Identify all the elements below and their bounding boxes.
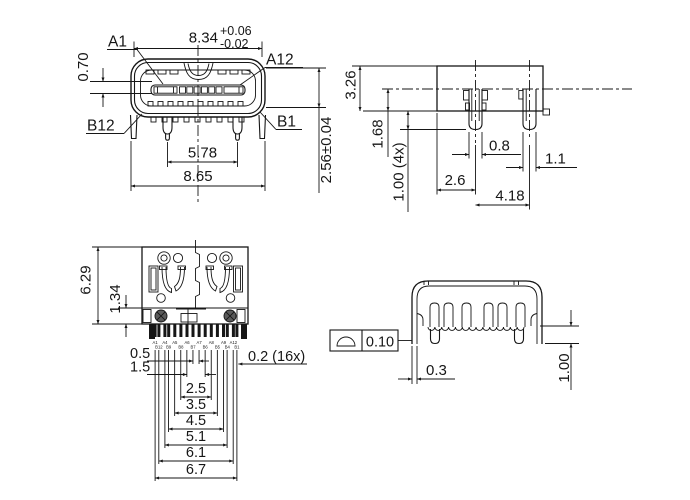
label-a1: A1 [108, 34, 127, 51]
dim-pitch-4-5: 4.5 [186, 413, 206, 429]
svg-text:B1: B1 [234, 345, 240, 350]
dim-shell-width: 8.34 [189, 30, 218, 47]
drawing-canvas: 8.34 +0.06 -0.02 A1 A12 B12 B1 0.70 5.78 [0, 0, 690, 500]
dim-leg-protrusion: 1.00 (4x) [391, 142, 408, 201]
dim-front-to-leg: 2.6 [445, 172, 466, 189]
dim-side-leg-pitch: 4.18 [495, 188, 524, 205]
dim-center-height: 1.68 [370, 119, 387, 148]
dim-side-height: 3.26 [343, 70, 360, 99]
dim-tol-plus: +0.06 [220, 24, 252, 38]
dim-leg-height: 1.00 [556, 353, 573, 382]
svg-text:B4: B4 [225, 345, 231, 350]
svg-text:A6: A6 [184, 340, 190, 345]
label-b12: B12 [87, 118, 115, 135]
dim-pitch-3-5: 3.5 [186, 397, 206, 413]
dim-pin-zone: 1.34 [107, 284, 124, 313]
svg-text:B7: B7 [190, 345, 196, 350]
dim-leg-pitch: 5.78 [188, 145, 217, 162]
svg-text:B6: B6 [203, 345, 209, 350]
dim-height: 2.56±0.04 [318, 117, 335, 184]
dim-depth: 6.29 [78, 265, 95, 294]
dim-rear-leg-width: 1.1 [545, 151, 566, 168]
label-b1: B1 [277, 114, 296, 131]
dim-pitch-6-7: 6.7 [186, 462, 206, 478]
engineering-drawing-usb-c-connector: 8.34 +0.06 -0.02 A1 A12 B12 B1 0.70 5.78 [0, 0, 690, 500]
svg-text:B12: B12 [155, 345, 163, 350]
svg-text:B8: B8 [178, 345, 184, 350]
svg-text:A5: A5 [172, 340, 178, 345]
gdt-tolerance-value: 0.10 [366, 335, 394, 351]
dim-pin-width: 0.2 (16x) [248, 349, 305, 365]
dim-pitch-1-5: 1.5 [130, 360, 150, 376]
svg-text:A7: A7 [197, 340, 203, 345]
svg-text:B9: B9 [166, 345, 172, 350]
label-a12: A12 [266, 52, 294, 69]
svg-text:A8: A8 [209, 340, 215, 345]
dim-pitch-6-1: 6.1 [186, 445, 206, 461]
dim-shell-offset: 0.3 [426, 362, 447, 379]
dim-tol-minus: -0.02 [220, 37, 249, 51]
dim-overall-width: 8.65 [183, 168, 212, 185]
dim-pitch-2-5: 2.5 [186, 381, 206, 397]
dim-tongue: 0.70 [75, 52, 92, 81]
smt-pin-comb [149, 324, 247, 339]
dim-front-leg-width: 0.8 [489, 138, 510, 155]
svg-text:B5: B5 [215, 345, 221, 350]
dim-pitch-5-1: 5.1 [186, 429, 206, 445]
